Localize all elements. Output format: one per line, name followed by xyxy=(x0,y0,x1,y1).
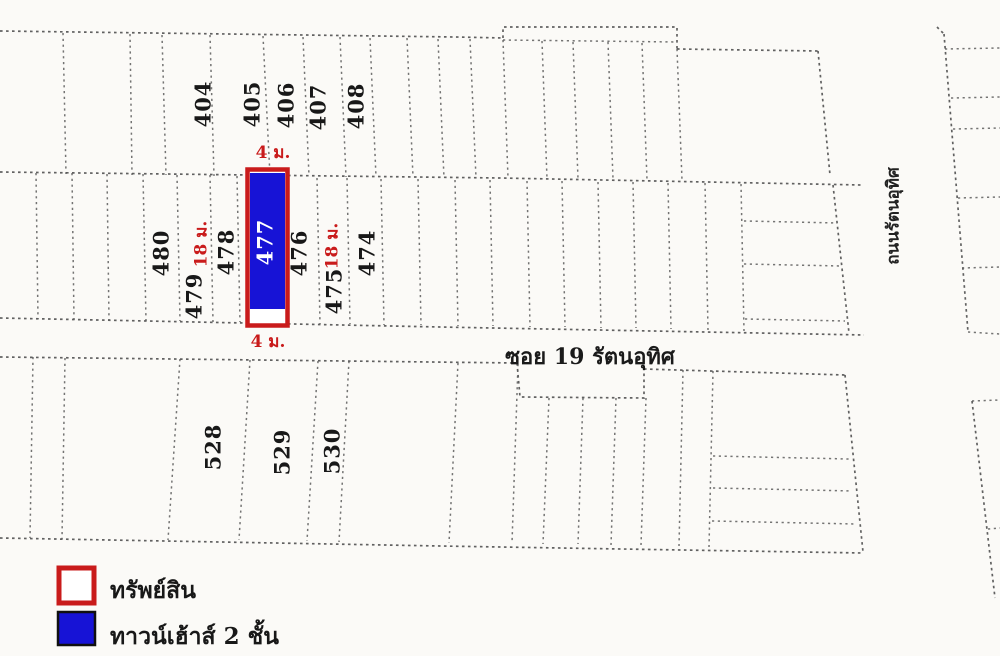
plot-477-label: 477 xyxy=(253,219,278,266)
plot-479-label: 479 xyxy=(182,273,207,320)
plot-476-label: 476 xyxy=(287,230,312,277)
bottom-row-boundaries xyxy=(0,357,863,553)
legend-swatch-property-red-outline xyxy=(59,568,94,603)
top-row-boundaries xyxy=(0,27,830,180)
plot-529-label: 529 xyxy=(270,429,295,476)
dimension-right-depth: 18 ม. xyxy=(323,223,343,270)
plot-480-label: 480 xyxy=(149,230,174,277)
soi-street-label: ซอย 19 รัตนอุทิศ xyxy=(505,344,676,371)
legend: ทรัพย์สิน ทาวน์เฮ้าส์ 2 ชั้น xyxy=(58,568,279,650)
plot-475-label: 475 xyxy=(322,268,347,315)
east-block-boundaries xyxy=(937,27,1000,598)
middle-row-boundaries xyxy=(0,172,864,335)
plot-map-canvas: 477 404 405 406 407 408 480 479 478 476 … xyxy=(0,0,1000,656)
road-street-label: ถนนรัตนอุทิศ xyxy=(884,166,904,265)
dimension-left-depth: 18 ม. xyxy=(192,221,212,268)
bottom-row-labels: 528 529 530 xyxy=(201,424,345,476)
plot-407-label: 407 xyxy=(306,84,331,131)
plot-530-label: 530 xyxy=(320,428,345,475)
legend-label-property: ทรัพย์สิน xyxy=(110,577,196,604)
legend-swatch-townhouse-blue-fill xyxy=(58,612,95,645)
plot-404-label: 404 xyxy=(191,81,216,128)
highlighted-plot-477: 477 xyxy=(246,168,289,327)
plot-406-label: 406 xyxy=(274,82,299,129)
land-plot-map: 477 404 405 406 407 408 480 479 478 476 … xyxy=(0,0,1000,656)
dimension-top-width: 4 ม. xyxy=(256,143,291,163)
plot-474-label: 474 xyxy=(355,230,380,277)
legend-label-townhouse: ทาวน์เฮ้าส์ 2 ชั้น xyxy=(110,619,279,650)
street-labels: ซอย 19 รัตนอุทิศ ถนนรัตนอุทิศ xyxy=(505,166,903,371)
dimension-bottom-width: 4 ม. xyxy=(251,332,286,352)
plot-408-label: 408 xyxy=(344,83,369,130)
top-row-labels: 404 405 406 407 408 xyxy=(191,81,369,131)
plot-405-label: 405 xyxy=(240,81,265,128)
plot-528-label: 528 xyxy=(201,424,226,471)
plot-478-label: 478 xyxy=(214,229,239,276)
